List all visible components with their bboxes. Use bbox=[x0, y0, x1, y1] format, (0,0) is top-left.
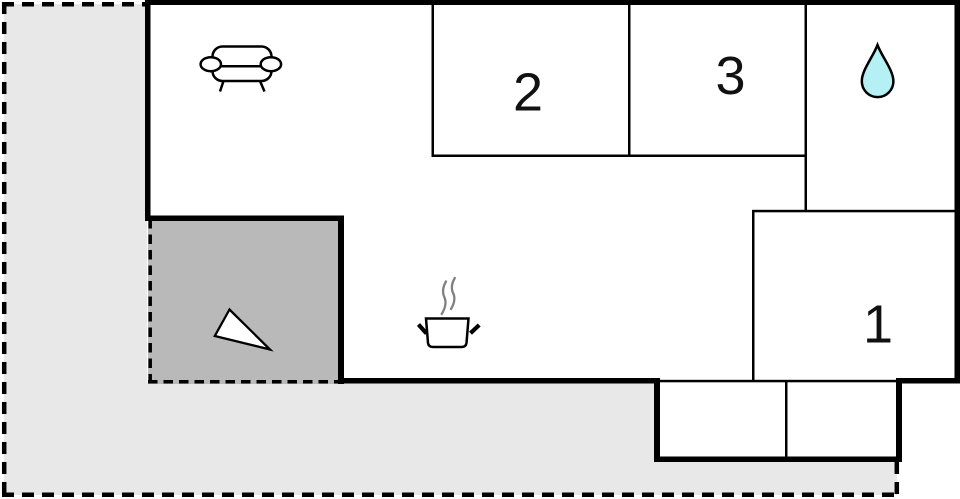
svg-text:1: 1 bbox=[863, 295, 893, 355]
svg-text:2: 2 bbox=[513, 63, 543, 123]
svg-text:3: 3 bbox=[715, 46, 745, 106]
